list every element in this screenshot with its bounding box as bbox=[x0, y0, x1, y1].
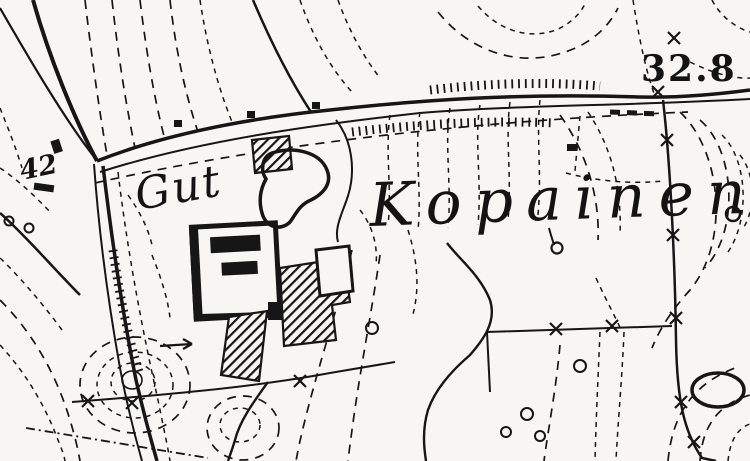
map-labels: Gut Kopainen 32.8 42 bbox=[17, 48, 750, 241]
place-name-label: Kopainen bbox=[367, 157, 750, 241]
road-number-label: 42 bbox=[17, 149, 60, 187]
barn-south bbox=[221, 311, 267, 381]
map-svg: Gut Kopainen 32.8 42 bbox=[0, 0, 750, 461]
manor-building bbox=[191, 223, 280, 319]
map-canvas: Gut Kopainen 32.8 42 bbox=[0, 0, 750, 461]
estate-label: Gut bbox=[131, 155, 226, 220]
dot-dash-boundary bbox=[26, 428, 208, 458]
outbuilding-northeast bbox=[316, 246, 353, 296]
manor-wing-north bbox=[210, 235, 261, 254]
closed-contour-ring bbox=[692, 373, 744, 407]
stone-circles bbox=[5, 207, 741, 441]
manor-wing-south bbox=[221, 261, 258, 276]
building-joint bbox=[268, 302, 282, 320]
elevation-label: 32.8 bbox=[641, 48, 737, 90]
hill-rings bbox=[80, 337, 744, 460]
